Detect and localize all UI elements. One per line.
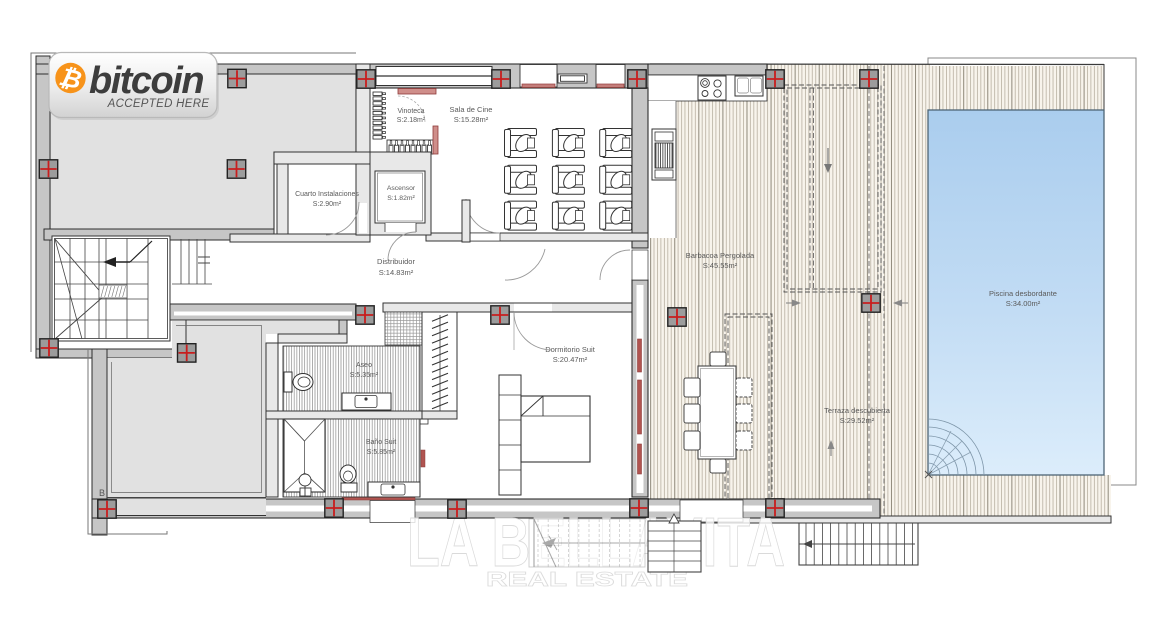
svg-text:Piscina desbordante: Piscina desbordante [989, 289, 1057, 298]
svg-text:bitcoin: bitcoin [89, 60, 203, 102]
svg-text:Aseo: Aseo [356, 362, 372, 369]
svg-text:Ascensor: Ascensor [387, 185, 416, 192]
svg-text:Dormitorio Suit: Dormitorio Suit [545, 345, 596, 354]
svg-text:Distribuidor: Distribuidor [377, 257, 415, 266]
svg-text:S:14.83m²: S:14.83m² [379, 268, 414, 277]
svg-text:S:5.85m²: S:5.85m² [367, 449, 396, 456]
svg-text:S:1.82m²: S:1.82m² [387, 195, 415, 202]
svg-text:S:15.28m²: S:15.28m² [454, 115, 489, 124]
svg-text:S:20.47m²: S:20.47m² [553, 355, 588, 364]
svg-text:B: B [99, 488, 105, 498]
svg-text:S:45.55m²: S:45.55m² [703, 261, 738, 270]
svg-text:S:2.18m²: S:2.18m² [397, 117, 426, 124]
svg-text:S:5.35m²: S:5.35m² [350, 372, 379, 379]
svg-text:Terraza descubierta: Terraza descubierta [824, 406, 891, 415]
svg-text:Sala de Cine: Sala de Cine [450, 105, 493, 114]
svg-text:Baño Suit: Baño Suit [366, 439, 396, 446]
svg-text:Cuarto Instalaciones: Cuarto Instalaciones [295, 191, 359, 198]
svg-text:S:29.52m²: S:29.52m² [840, 416, 875, 425]
svg-text:S:34.00m²: S:34.00m² [1006, 299, 1041, 308]
svg-text:Barbacoa Pergolada: Barbacoa Pergolada [686, 251, 755, 260]
svg-text:ACCEPTED HERE: ACCEPTED HERE [107, 98, 210, 110]
svg-text:S:2.90m²: S:2.90m² [313, 201, 342, 208]
svg-text:Vinoteca: Vinoteca [397, 108, 424, 115]
